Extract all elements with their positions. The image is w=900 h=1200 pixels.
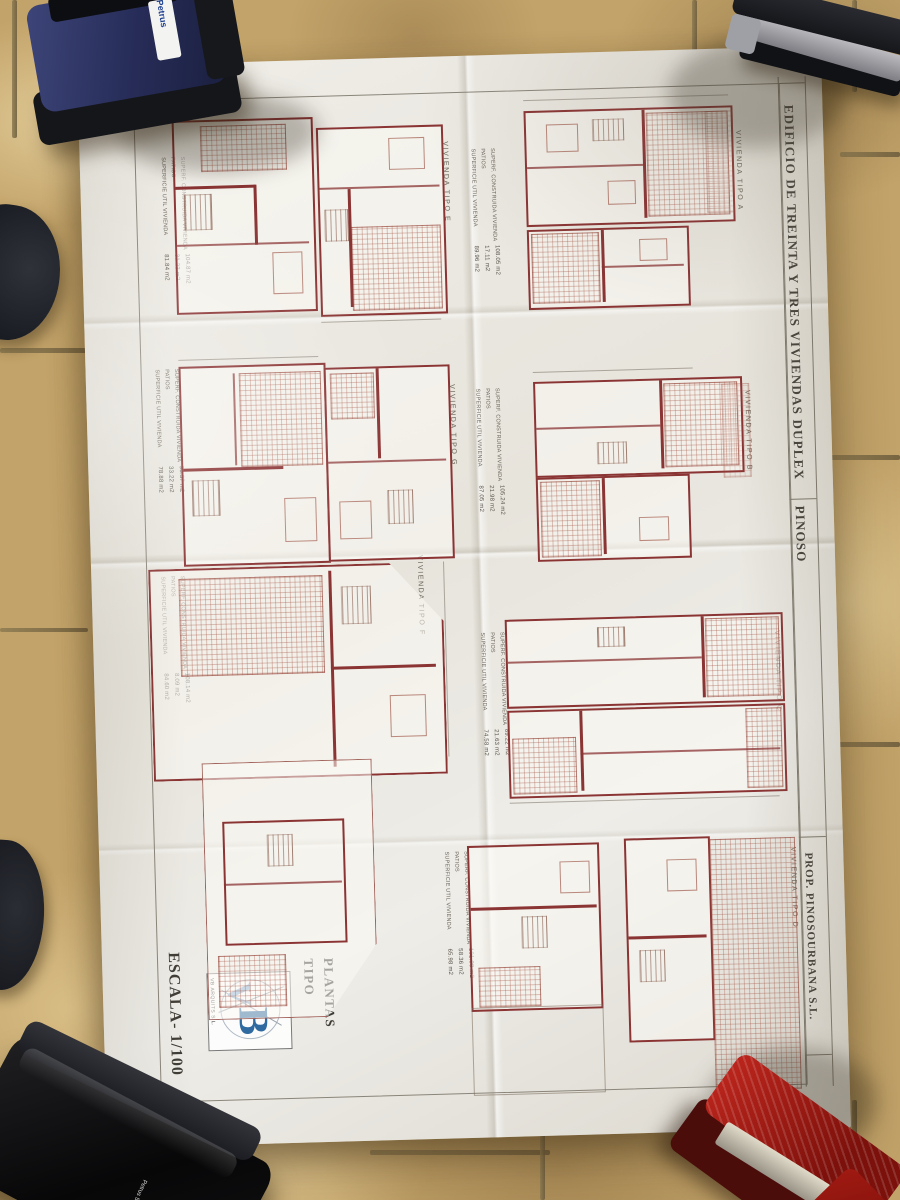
stair-symbol (592, 118, 625, 141)
furniture-symbol (559, 861, 590, 894)
floor-plan-tipo-c-upper (505, 612, 785, 709)
side-patio-hatch (721, 383, 752, 478)
furniture-symbol (639, 516, 670, 541)
patio-hatch (478, 966, 541, 1008)
wall-segment (175, 185, 255, 190)
terrace-hatch (351, 225, 443, 311)
scale-label: ESCALA- 1/100 (164, 952, 185, 1076)
partition-line (177, 241, 309, 246)
stair-symbol (521, 916, 548, 949)
stair-symbol (267, 834, 294, 867)
partition-line (508, 656, 702, 663)
tile-grout-line (840, 152, 900, 157)
patio-hatch (512, 737, 578, 795)
tile-grout-line (0, 348, 92, 353)
floor-plan-tipo-b-lower (536, 474, 692, 562)
area-table-tipo-a: SUPERFICIE UTIL VIVIENDA PATIOS SUPERF. … (467, 148, 509, 294)
furniture-symbol (284, 497, 317, 542)
furniture-symbol (639, 238, 668, 261)
tile-grout-line (370, 1150, 550, 1155)
wall-segment (331, 664, 436, 670)
photo-scene: EDIFICIO DE TREINTA Y TRES VIVIENDAS DUP… (0, 0, 900, 1200)
floor-plan-tipo-g-upper (178, 363, 331, 567)
area-table-tipo-b: SUPERFICIE UTIL VIVIENDA PATIOS SUPERF. … (472, 388, 514, 534)
partition-line (527, 164, 643, 169)
patio-hatch (218, 954, 287, 1008)
tile-grout-line (540, 1128, 545, 1200)
floor-plan-tipo-f-main (148, 562, 448, 782)
floor-plan-tipo-b-upper (533, 376, 745, 478)
terrace-hatch (705, 616, 781, 697)
wall-segment (629, 934, 707, 939)
stair-symbol (324, 209, 349, 242)
floor-plan-tipo-c-lower (507, 703, 787, 799)
partition-line (233, 373, 238, 465)
area-table-labels: SUPERFICIE UTIL VIVIENDA PATIOS SUPERF. … (472, 388, 504, 482)
wall-segment (471, 904, 597, 911)
furniture-symbol (388, 137, 425, 170)
wall-segment (579, 711, 584, 791)
furniture-symbol (339, 501, 372, 540)
shoe-toe-upper (0, 199, 69, 347)
stair-symbol (184, 194, 213, 231)
wall-segment (253, 185, 258, 245)
partition-line (602, 264, 684, 268)
partition-line (320, 185, 440, 190)
shoe-toe-lower (0, 837, 49, 992)
patio-hatch (531, 232, 601, 304)
area-table-labels: SUPERFICIE UTIL VIVIENDA PATIOS SUPERF. … (467, 148, 499, 242)
tile-grout-line (12, 0, 17, 138)
area-table-labels: SUPERFICIE UTIL VIVIENDA PATIOS SUPERF. … (477, 632, 509, 726)
partition-line (536, 424, 660, 429)
wall-segment (602, 478, 607, 554)
patio-hatch (540, 480, 602, 558)
tile-grout-line (0, 628, 88, 632)
stair-symbol (597, 441, 628, 464)
courtyard-outline (471, 1004, 605, 1096)
punch-brand-text: Petrus (155, 0, 170, 28)
floor-plan-tipo-d-left (467, 842, 604, 1012)
partition-line (328, 458, 446, 463)
stair-symbol (341, 586, 372, 625)
terrace-hatch (239, 371, 324, 467)
patio-hatch (178, 575, 325, 677)
area-table-values: 89.96 m2 17.11 m2 108.05 m2 (470, 245, 502, 276)
furniture-symbol (666, 859, 697, 892)
stair-symbol (192, 480, 221, 517)
edge-title-location: PINOSO (793, 506, 810, 563)
wall-segment (376, 368, 382, 458)
furniture-symbol (272, 251, 303, 294)
area-table-values: 87.05 m2 21.98 m2 105.24 m2 (475, 485, 507, 516)
floor-plan-tipo-a-lower (527, 226, 691, 310)
floor-plan-tipo-e-lower (316, 124, 448, 316)
stair-symbol (387, 489, 414, 524)
patio-hatch (330, 372, 375, 419)
stair-symbol (639, 950, 666, 983)
wall-segment (183, 466, 283, 472)
floor-plan-tipo-g-lower (324, 364, 455, 561)
plan-sheet: EDIFICIO DE TREINTA Y TRES VIVIENDAS DUP… (77, 46, 851, 1148)
stair-symbol (597, 627, 626, 648)
furniture-symbol (390, 694, 427, 737)
tile-grout-line (828, 455, 900, 460)
furniture-symbol (546, 124, 579, 153)
furniture-symbol (607, 180, 636, 205)
title-strip-tick (799, 836, 826, 838)
floor-plan-tipo-d-right (624, 836, 716, 1042)
